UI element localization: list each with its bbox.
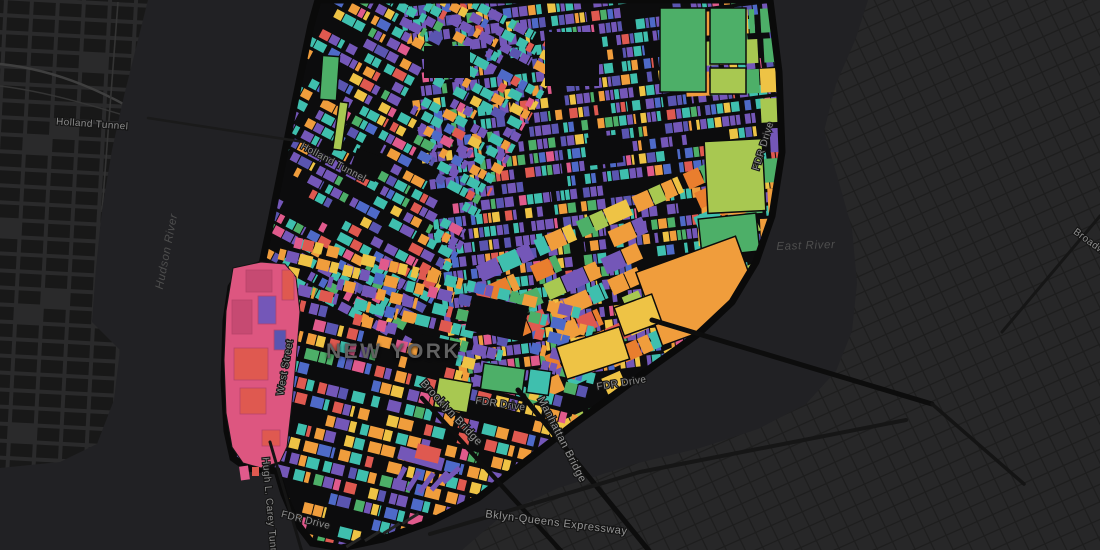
label-east-river: East River (776, 239, 836, 253)
map-container: Holland TunnelHolland TunnelHudson River… (0, 0, 1100, 550)
nyc-map[interactable]: Holland TunnelHolland TunnelHudson River… (0, 0, 1100, 550)
